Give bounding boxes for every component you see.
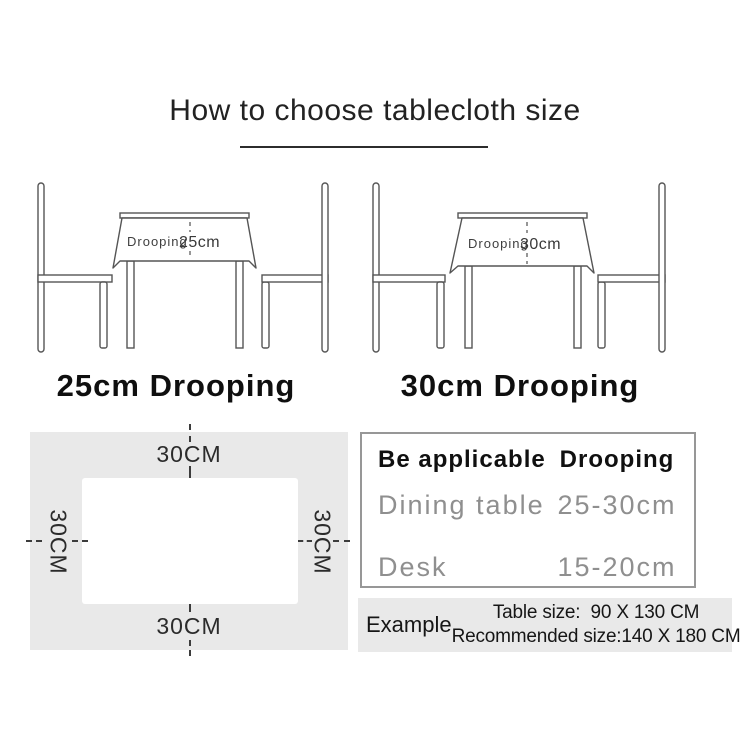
dashed-tick-left bbox=[26, 540, 42, 542]
left-chair-icon bbox=[373, 183, 445, 352]
title-underline bbox=[240, 146, 488, 148]
example-line-recommended-size: Recommended size:140 X 180 CM bbox=[452, 625, 741, 649]
spec-cell-dining-drooping: 25-30cm bbox=[552, 490, 682, 521]
dashed-tick-bottom bbox=[189, 640, 191, 656]
margin-label-right: 30CM bbox=[309, 509, 336, 574]
cloth-drooping-value: 30cm bbox=[520, 236, 561, 253]
dashed-tick-top bbox=[189, 466, 191, 478]
caption-30cm-drooping: 30cm Drooping bbox=[370, 368, 670, 404]
tablecloth-icon: Drooping 30cm bbox=[450, 218, 594, 273]
caption-25cm-drooping: 25cm Drooping bbox=[26, 368, 326, 404]
spec-cell-dining-table: Dining table bbox=[378, 490, 545, 521]
cloth-drooping-value: 25cm bbox=[179, 234, 220, 251]
tablecloth-icon: Drooping 25cm bbox=[113, 218, 256, 268]
dashed-tick-right bbox=[298, 540, 312, 542]
spec-header-applicable: Be applicable bbox=[378, 446, 546, 474]
tablecloth-30cm-illustration: Drooping 30cm bbox=[370, 180, 670, 355]
spec-table: Be applicable Drooping Dining table 25-3… bbox=[360, 432, 696, 588]
page-title: How to choose tablecloth size bbox=[0, 94, 750, 128]
right-chair-icon bbox=[262, 183, 328, 352]
right-chair-icon bbox=[598, 183, 665, 352]
dashed-tick-left bbox=[72, 540, 88, 542]
margin-label-left: 30CM bbox=[45, 509, 72, 574]
tablecloth-size-infographic: How to choose tablecloth size Drooping 2… bbox=[0, 0, 750, 750]
tablecloth-25cm-illustration: Drooping 25cm bbox=[25, 180, 335, 355]
spec-cell-desk: Desk bbox=[378, 552, 448, 583]
spec-header-drooping: Drooping bbox=[552, 446, 682, 474]
margin-label-bottom: 30CM bbox=[30, 613, 348, 640]
size-diagram-panel: 30CM 30CM 30CM 30CM bbox=[30, 432, 348, 650]
margin-label-top: 30CM bbox=[30, 441, 348, 468]
dashed-tick-bottom bbox=[189, 604, 191, 612]
table-surface-rect bbox=[82, 478, 298, 604]
dashed-tick-top bbox=[189, 424, 191, 442]
example-line-table-size: Table size: 90 X 130 CM bbox=[493, 601, 699, 625]
left-chair-icon bbox=[38, 183, 112, 352]
example-box: Example Table size: 90 X 130 CM Recommen… bbox=[358, 598, 732, 652]
spec-cell-desk-drooping: 15-20cm bbox=[552, 552, 682, 583]
example-label: Example bbox=[358, 612, 452, 638]
dashed-tick-right bbox=[333, 540, 350, 542]
example-lines: Table size: 90 X 130 CM Recommended size… bbox=[452, 601, 741, 649]
